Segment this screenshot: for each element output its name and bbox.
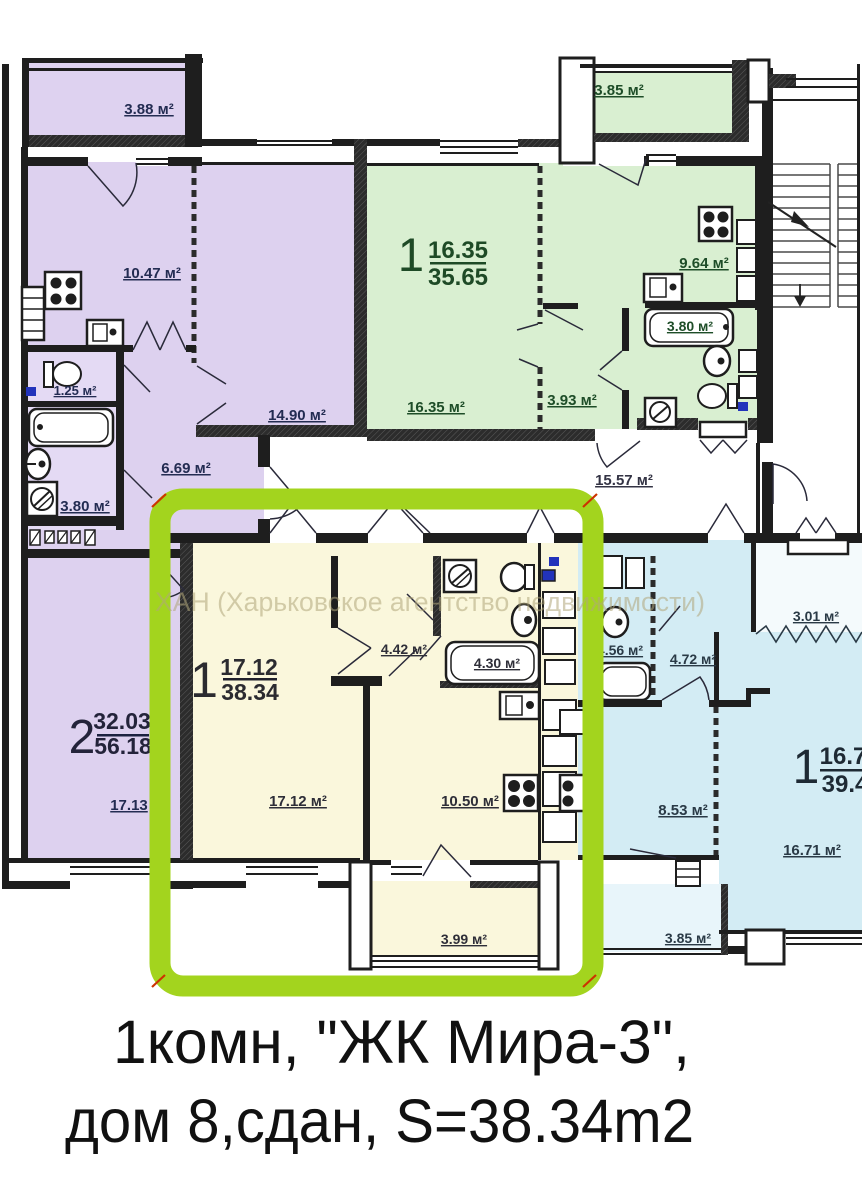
svg-text:4.30 м²: 4.30 м² <box>474 655 520 671</box>
svg-text:10.47 м²: 10.47 м² <box>123 265 181 282</box>
svg-text:56.18: 56.18 <box>94 733 152 759</box>
svg-text:4.72 м²: 4.72 м² <box>670 651 716 667</box>
svg-text:3.88 м²: 3.88 м² <box>124 101 173 118</box>
svg-text:3.85 м²: 3.85 м² <box>665 930 711 946</box>
svg-text:1.25 м²: 1.25 м² <box>54 383 98 398</box>
svg-text:17.13: 17.13 <box>110 797 148 814</box>
svg-text:3.93 м²: 3.93 м² <box>547 392 596 409</box>
svg-text:16.35 м²: 16.35 м² <box>407 399 465 416</box>
svg-text:3.85 м²: 3.85 м² <box>594 82 643 99</box>
svg-text:1комн, "ЖК Мира-3",: 1комн, "ЖК Мира-3", <box>113 1008 690 1076</box>
svg-text:15.57 м²: 15.57 м² <box>595 472 653 489</box>
svg-text:4.56 м²: 4.56 м² <box>597 642 643 658</box>
svg-text:дом 8,сдан, S=38.34m2: дом 8,сдан, S=38.34m2 <box>65 1087 694 1155</box>
svg-text:6.69 м²: 6.69 м² <box>161 460 210 477</box>
svg-text:38.34: 38.34 <box>221 679 279 705</box>
svg-text:32.03: 32.03 <box>93 708 151 734</box>
svg-text:16.35: 16.35 <box>428 237 488 264</box>
svg-text:35.65: 35.65 <box>428 264 488 291</box>
svg-text:16.7: 16.7 <box>820 743 862 770</box>
svg-text:17.12: 17.12 <box>220 654 278 680</box>
svg-text:14.90 м²: 14.90 м² <box>268 407 326 424</box>
svg-text:17.12 м²: 17.12 м² <box>269 793 327 810</box>
svg-text:1: 1 <box>190 652 218 708</box>
svg-text:1: 1 <box>398 228 424 281</box>
svg-text:9.64 м²: 9.64 м² <box>679 255 728 272</box>
svg-text:1: 1 <box>793 741 820 794</box>
svg-text:4.42 м²: 4.42 м² <box>381 641 427 657</box>
svg-text:3.99 м²: 3.99 м² <box>441 931 487 947</box>
svg-text:16.71 м²: 16.71 м² <box>783 842 841 859</box>
svg-text:39.4: 39.4 <box>822 771 862 798</box>
svg-text:3.01 м²: 3.01 м² <box>793 608 839 624</box>
svg-text:ХАН (Харьковское агентство нед: ХАН (Харьковское агентство недвижимости) <box>155 587 705 617</box>
svg-text:3.80 м²: 3.80 м² <box>60 498 109 515</box>
svg-text:3.80 м²: 3.80 м² <box>667 318 713 334</box>
svg-text:10.50 м²: 10.50 м² <box>441 793 499 810</box>
svg-text:8.53 м²: 8.53 м² <box>658 802 707 819</box>
svg-text:2: 2 <box>69 711 96 764</box>
